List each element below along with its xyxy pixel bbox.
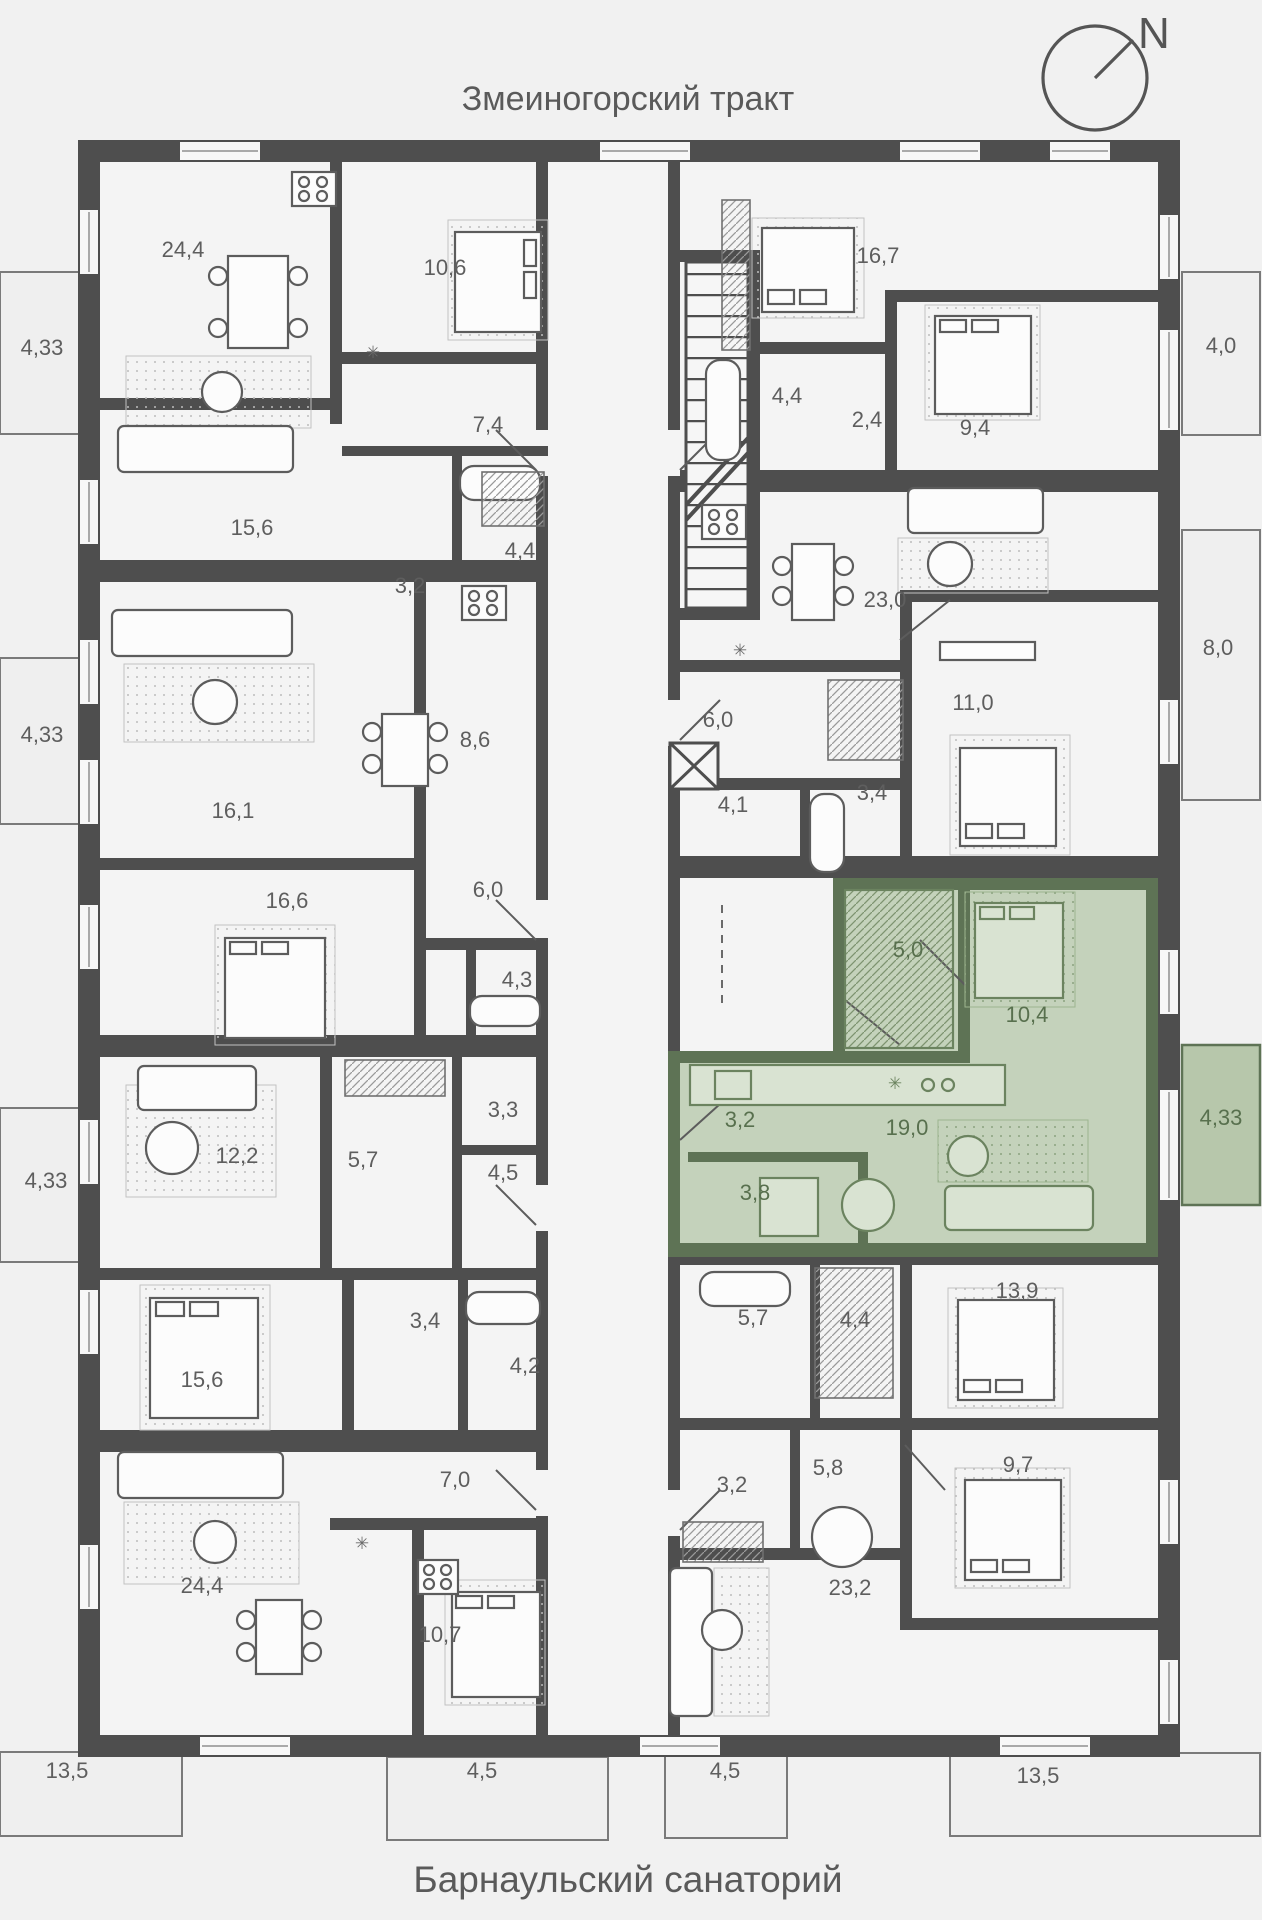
area-label: 4,4: [772, 383, 803, 408]
elevator: [670, 743, 718, 789]
area-label: 5,8: [813, 1455, 844, 1480]
area-label: 4,33: [1200, 1105, 1243, 1130]
area-label: 19,0: [886, 1115, 929, 1140]
area-label: 4,2: [510, 1353, 541, 1378]
area-label: 10,4: [1006, 1002, 1049, 1027]
terrace-bottom-right: [950, 1753, 1260, 1836]
area-label: 16,6: [266, 888, 309, 913]
floor-plan: Змеиногорский тракт N: [0, 0, 1262, 1920]
area-label: 4,33: [21, 335, 64, 360]
area-label: 23,2: [829, 1575, 872, 1600]
area-label: 5,0: [893, 937, 924, 962]
terrace-bottom-left: [0, 1752, 182, 1836]
area-label: 2,4: [852, 407, 883, 432]
area-label: 3,2: [395, 573, 426, 598]
area-label: 4,5: [488, 1160, 519, 1185]
area-label: 13,9: [996, 1278, 1039, 1303]
area-label: 13,5: [1017, 1763, 1060, 1788]
street-title-top: Змеиногорский тракт: [462, 80, 795, 118]
area-label: 24,4: [181, 1573, 224, 1598]
area-label: 4,33: [25, 1168, 68, 1193]
area-label: 4,1: [718, 792, 749, 817]
area-label: 3,3: [488, 1097, 519, 1122]
area-label: 5,7: [348, 1147, 379, 1172]
area-label: 4,4: [840, 1307, 871, 1332]
area-label: 3,8: [740, 1180, 771, 1205]
area-label: 23,0: [864, 587, 907, 612]
appliance-asterisk-icon: ✳: [366, 343, 380, 362]
area-label: 8,6: [460, 727, 491, 752]
area-label: 16,1: [212, 798, 255, 823]
area-label: 3,4: [410, 1308, 441, 1333]
north-label: N: [1138, 9, 1170, 58]
area-label: 3,4: [857, 780, 888, 805]
area-label: 11,0: [952, 690, 993, 715]
area-label: 4,0: [1206, 333, 1237, 358]
area-label: 13,5: [46, 1758, 89, 1783]
area-label: 4,3: [502, 967, 533, 992]
area-label: 9,4: [960, 415, 991, 440]
porch-bottom-left: [387, 1757, 608, 1840]
area-label: 12,2: [216, 1143, 259, 1168]
floor-plan-page: Змеиногорский тракт N: [0, 0, 1262, 1920]
area-label: 5,7: [738, 1305, 769, 1330]
area-label: 10,6: [424, 255, 467, 280]
area-label: 3,2: [725, 1107, 756, 1132]
area-label: 6,0: [703, 707, 734, 732]
area-label: 4,5: [467, 1758, 498, 1783]
area-label: 4,5: [710, 1758, 741, 1783]
appliance-asterisk-icon: ✳: [888, 1074, 902, 1093]
area-label: 4,4: [505, 538, 536, 563]
appliance-asterisk-icon: ✳: [355, 1534, 369, 1553]
area-label: 4,33: [21, 722, 64, 747]
area-label: 16,7: [857, 243, 900, 268]
area-label: 10,7: [419, 1622, 462, 1647]
area-label: 9,7: [1003, 1452, 1034, 1477]
area-label: 15,6: [231, 515, 274, 540]
area-label: 6,0: [473, 877, 504, 902]
area-label: 15,6: [181, 1367, 224, 1392]
appliance-asterisk-icon: ✳: [733, 641, 747, 660]
street-title-bottom: Барнаульский санаторий: [413, 1859, 842, 1900]
area-label: 24,4: [162, 237, 205, 262]
area-label: 8,0: [1203, 635, 1234, 660]
area-label: 7,0: [440, 1467, 471, 1492]
area-label: 7,4: [473, 412, 504, 437]
balcony-right-middle: [1182, 530, 1260, 800]
area-label: 3,2: [717, 1472, 748, 1497]
